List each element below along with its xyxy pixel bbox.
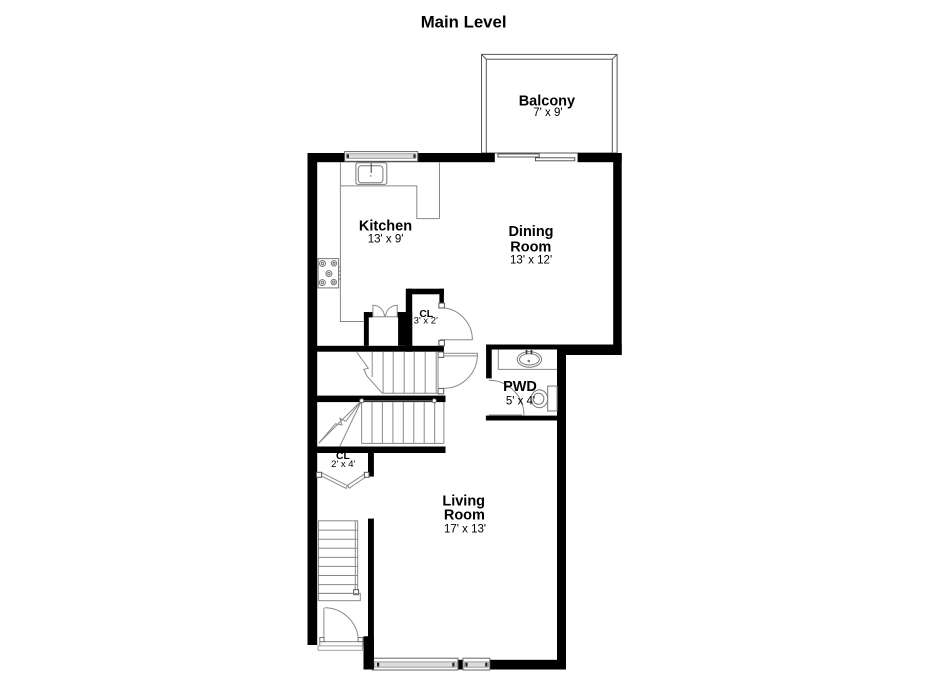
svg-text:5' x 4': 5' x 4' <box>506 395 535 407</box>
svg-text:13' x 9': 13' x 9' <box>368 234 404 246</box>
svg-text:Main Level: Main Level <box>421 12 507 31</box>
svg-text:PWD: PWD <box>503 379 537 395</box>
svg-text:3' x 2': 3' x 2' <box>414 316 438 327</box>
svg-text:2' x 4': 2' x 4' <box>331 459 355 470</box>
svg-text:Dining: Dining <box>508 224 553 240</box>
svg-text:Room: Room <box>444 507 485 523</box>
svg-text:7' x 9': 7' x 9' <box>533 107 562 119</box>
svg-text:Room: Room <box>510 239 551 255</box>
svg-text:13' x 12': 13' x 12' <box>510 254 552 266</box>
svg-text:Kitchen: Kitchen <box>359 219 412 235</box>
svg-text:17' x 13': 17' x 13' <box>444 523 486 535</box>
